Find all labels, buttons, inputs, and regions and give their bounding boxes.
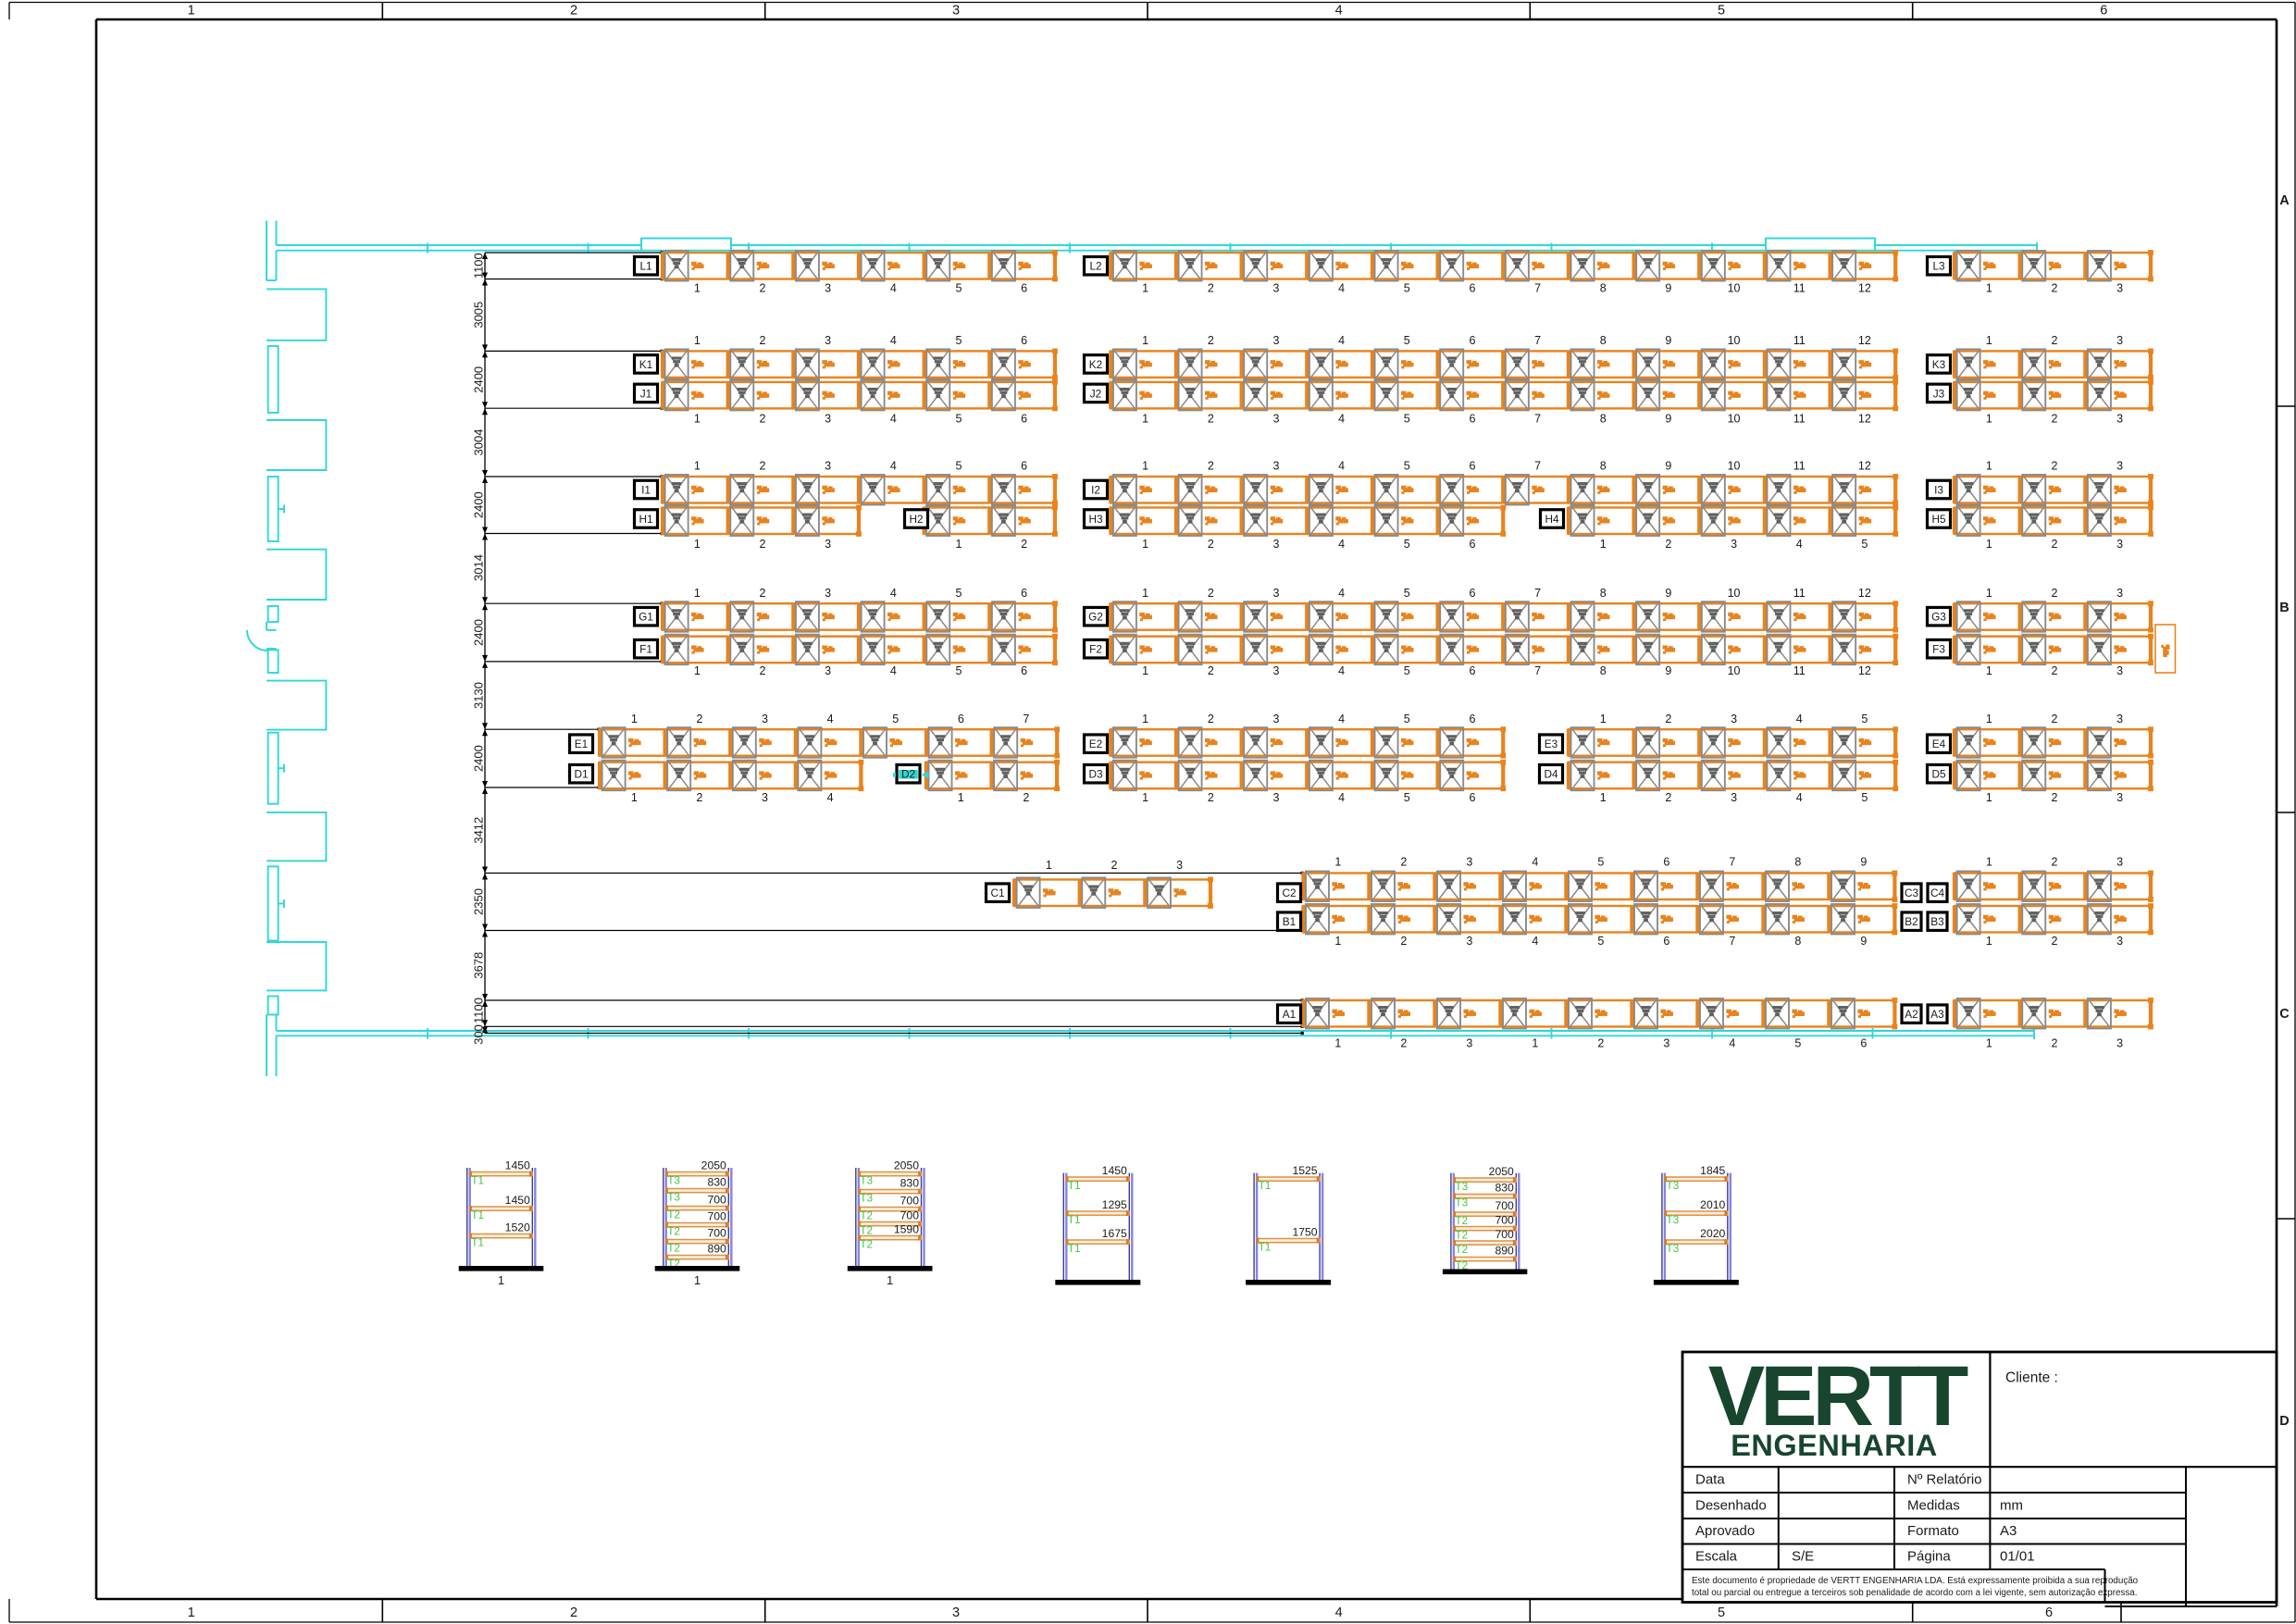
svg-text:mm: mm <box>2000 1498 2023 1514</box>
svg-text:5: 5 <box>955 282 962 295</box>
svg-text:4: 4 <box>1338 282 1345 295</box>
svg-text:700: 700 <box>900 1209 920 1222</box>
svg-text:6: 6 <box>1469 587 1475 600</box>
svg-text:8: 8 <box>1600 587 1607 600</box>
svg-text:8: 8 <box>1600 413 1607 426</box>
svg-text:2050: 2050 <box>1489 1165 1514 1178</box>
svg-text:6: 6 <box>1469 538 1475 551</box>
svg-text:1525: 1525 <box>1292 1164 1317 1177</box>
svg-text:4: 4 <box>1338 713 1345 725</box>
svg-text:3: 3 <box>2116 1037 2123 1050</box>
svg-text:T1: T1 <box>471 1236 484 1249</box>
svg-text:5: 5 <box>1404 664 1410 677</box>
svg-text:E2: E2 <box>1089 738 1102 750</box>
svg-text:1: 1 <box>694 282 701 295</box>
svg-text:3: 3 <box>1176 859 1183 872</box>
svg-text:2: 2 <box>696 791 702 804</box>
svg-text:1100: 1100 <box>472 998 486 1023</box>
svg-text:11: 11 <box>1793 413 1806 426</box>
svg-text:7: 7 <box>1534 664 1541 677</box>
svg-text:6: 6 <box>2045 1605 2053 1620</box>
svg-text:1: 1 <box>1142 413 1148 426</box>
svg-text:Página: Página <box>1907 1549 1951 1565</box>
svg-text:5: 5 <box>1404 334 1410 347</box>
svg-text:1: 1 <box>1046 859 1052 872</box>
svg-text:1: 1 <box>1986 1037 1992 1050</box>
svg-text:6: 6 <box>1021 587 1027 600</box>
svg-text:2: 2 <box>1208 713 1214 725</box>
svg-text:T2: T2 <box>1455 1214 1468 1227</box>
svg-text:ENGENHARIA: ENGENHARIA <box>1731 1429 1938 1462</box>
svg-text:4: 4 <box>1335 4 1343 19</box>
svg-text:1: 1 <box>1600 713 1607 725</box>
svg-text:1: 1 <box>694 334 701 347</box>
svg-text:4: 4 <box>1338 664 1345 677</box>
svg-text:3: 3 <box>1272 282 1279 295</box>
svg-text:T2: T2 <box>860 1224 873 1237</box>
svg-text:1: 1 <box>1986 791 1992 804</box>
svg-text:9: 9 <box>1665 587 1671 600</box>
svg-text:6: 6 <box>1469 460 1475 473</box>
svg-text:4: 4 <box>1729 1037 1735 1050</box>
svg-text:H2: H2 <box>909 513 923 526</box>
svg-text:1: 1 <box>1986 856 1992 869</box>
svg-text:F1: F1 <box>639 643 652 656</box>
svg-text:3: 3 <box>1272 460 1279 473</box>
svg-text:8: 8 <box>1600 282 1607 295</box>
svg-text:890: 890 <box>707 1243 726 1256</box>
svg-text:3: 3 <box>762 791 768 804</box>
svg-text:4: 4 <box>890 282 897 295</box>
svg-text:1: 1 <box>1986 282 1992 295</box>
svg-text:10: 10 <box>1728 460 1741 473</box>
svg-text:T3: T3 <box>1666 1213 1679 1226</box>
svg-text:B1: B1 <box>1283 915 1296 928</box>
svg-text:300: 300 <box>472 1024 486 1045</box>
svg-text:9: 9 <box>1665 334 1671 347</box>
svg-text:Formato: Formato <box>1907 1523 1959 1539</box>
svg-text:3004: 3004 <box>472 429 486 456</box>
svg-text:3: 3 <box>825 334 831 347</box>
svg-text:1: 1 <box>694 413 701 426</box>
svg-text:700: 700 <box>707 1227 726 1240</box>
svg-text:1: 1 <box>1334 1037 1341 1050</box>
svg-text:1: 1 <box>1142 664 1148 677</box>
svg-text:T3: T3 <box>1666 1179 1679 1192</box>
svg-text:6: 6 <box>1469 664 1475 677</box>
svg-text:6: 6 <box>1021 413 1027 426</box>
svg-text:1: 1 <box>1334 856 1341 869</box>
svg-text:9: 9 <box>1665 460 1671 473</box>
svg-text:T3: T3 <box>667 1174 680 1187</box>
svg-text:1: 1 <box>1600 791 1607 804</box>
svg-text:T2: T2 <box>667 1209 680 1221</box>
svg-text:12: 12 <box>1858 334 1871 347</box>
svg-text:4: 4 <box>1338 791 1345 804</box>
svg-text:3: 3 <box>2116 935 2123 948</box>
svg-text:1: 1 <box>1986 587 1992 600</box>
svg-text:1295: 1295 <box>1102 1198 1127 1211</box>
svg-text:2020: 2020 <box>1700 1227 1725 1240</box>
svg-text:K3: K3 <box>1932 358 1946 371</box>
svg-text:11: 11 <box>1793 334 1806 347</box>
svg-text:700: 700 <box>707 1210 726 1223</box>
svg-text:8: 8 <box>1600 460 1607 473</box>
svg-text:3: 3 <box>952 1605 960 1620</box>
svg-text:D2: D2 <box>901 768 915 781</box>
svg-text:6: 6 <box>1469 413 1475 426</box>
svg-text:5: 5 <box>1861 791 1868 804</box>
svg-text:3: 3 <box>1731 713 1737 725</box>
svg-text:3: 3 <box>2116 413 2123 426</box>
svg-text:1: 1 <box>1142 282 1148 295</box>
svg-text:G3: G3 <box>1931 611 1946 624</box>
svg-text:2: 2 <box>2052 460 2058 473</box>
svg-text:5: 5 <box>1597 856 1604 869</box>
svg-text:11: 11 <box>1793 282 1806 295</box>
svg-text:B2: B2 <box>1905 915 1917 928</box>
svg-text:C1: C1 <box>990 886 1004 899</box>
svg-text:T2: T2 <box>1455 1243 1468 1256</box>
svg-text:1: 1 <box>1986 538 1992 551</box>
svg-text:H3: H3 <box>1088 513 1103 526</box>
svg-text:2: 2 <box>2052 538 2058 551</box>
svg-text:T1: T1 <box>1259 1179 1272 1192</box>
svg-text:H4: H4 <box>1545 513 1559 526</box>
svg-text:6: 6 <box>1021 460 1027 473</box>
svg-text:K2: K2 <box>1089 358 1102 371</box>
svg-text:2: 2 <box>760 282 766 295</box>
svg-text:2: 2 <box>1208 460 1214 473</box>
svg-text:5: 5 <box>955 664 962 677</box>
svg-text:5: 5 <box>1597 935 1604 948</box>
svg-text:1100: 1100 <box>472 253 486 279</box>
svg-text:6: 6 <box>1469 713 1475 725</box>
svg-text:3: 3 <box>1272 664 1279 677</box>
svg-text:3: 3 <box>2116 664 2123 677</box>
svg-text:3: 3 <box>2116 791 2123 804</box>
svg-text:T2: T2 <box>667 1242 680 1255</box>
svg-text:1: 1 <box>1142 538 1148 551</box>
svg-text:L2: L2 <box>1089 260 1101 273</box>
svg-text:A3: A3 <box>1930 1008 1944 1021</box>
svg-text:3: 3 <box>1466 856 1472 869</box>
svg-text:2: 2 <box>2052 791 2058 804</box>
svg-text:2: 2 <box>760 334 766 347</box>
svg-text:G1: G1 <box>639 611 653 624</box>
svg-text:2: 2 <box>1665 791 1671 804</box>
svg-text:E4: E4 <box>1932 738 1946 750</box>
svg-text:6: 6 <box>1469 282 1475 295</box>
svg-text:T1: T1 <box>1259 1241 1272 1254</box>
svg-text:1590: 1590 <box>894 1223 919 1236</box>
svg-text:2400: 2400 <box>472 491 486 518</box>
svg-text:total ou parcial ou entregue a: total ou parcial ou entregue a terceiros… <box>1692 1588 2137 1598</box>
svg-text:4: 4 <box>1338 460 1345 473</box>
svg-text:Este documento é propriedade d: Este documento é propriedade de VERTT EN… <box>1692 1576 2139 1586</box>
svg-text:1: 1 <box>1142 460 1148 473</box>
svg-text:6: 6 <box>1860 1037 1867 1050</box>
svg-text:1: 1 <box>955 538 962 551</box>
svg-text:10: 10 <box>1728 334 1741 347</box>
svg-text:1: 1 <box>1600 538 1607 551</box>
svg-text:D1: D1 <box>574 768 588 781</box>
svg-text:2: 2 <box>1208 587 1214 600</box>
svg-text:3: 3 <box>1272 538 1279 551</box>
svg-text:1: 1 <box>887 1273 893 1287</box>
svg-text:2: 2 <box>2052 282 2058 295</box>
svg-text:2400: 2400 <box>472 366 486 393</box>
svg-text:3: 3 <box>1272 334 1279 347</box>
svg-text:2: 2 <box>2052 587 2058 600</box>
svg-text:H5: H5 <box>1931 513 1946 526</box>
svg-text:4: 4 <box>1338 538 1345 551</box>
svg-text:1: 1 <box>188 1605 195 1620</box>
svg-text:Data: Data <box>1695 1472 1725 1488</box>
svg-text:4: 4 <box>890 664 897 677</box>
svg-text:3: 3 <box>2116 334 2123 347</box>
svg-text:2: 2 <box>696 713 702 725</box>
svg-text:3: 3 <box>952 4 960 19</box>
svg-text:A3: A3 <box>2000 1523 2017 1539</box>
svg-text:3: 3 <box>825 587 831 600</box>
svg-text:10: 10 <box>1728 587 1741 600</box>
svg-text:4: 4 <box>1335 1605 1343 1620</box>
svg-text:2: 2 <box>1208 282 1214 295</box>
svg-text:2: 2 <box>1208 664 1214 677</box>
svg-text:8: 8 <box>1794 856 1801 869</box>
svg-text:2: 2 <box>1208 538 1214 551</box>
svg-text:4: 4 <box>1338 334 1345 347</box>
svg-text:4: 4 <box>890 587 897 600</box>
svg-text:700: 700 <box>900 1195 920 1208</box>
svg-text:3: 3 <box>825 460 831 473</box>
svg-text:1520: 1520 <box>505 1221 530 1234</box>
svg-text:2050: 2050 <box>701 1159 726 1172</box>
svg-text:A1: A1 <box>1283 1008 1296 1021</box>
svg-text:L3: L3 <box>1932 260 1945 273</box>
svg-text:6: 6 <box>1469 334 1475 347</box>
svg-text:1450: 1450 <box>505 1194 530 1207</box>
svg-text:3: 3 <box>762 713 768 725</box>
svg-text:2: 2 <box>760 538 766 551</box>
svg-text:1: 1 <box>694 587 701 600</box>
svg-text:5: 5 <box>1861 713 1868 725</box>
svg-text:T1: T1 <box>471 1209 484 1221</box>
svg-text:7: 7 <box>1729 856 1735 869</box>
svg-text:6: 6 <box>2100 4 2107 19</box>
svg-text:12: 12 <box>1858 413 1871 426</box>
svg-text:J2: J2 <box>1090 387 1101 400</box>
svg-text:F2: F2 <box>1089 643 1102 656</box>
svg-text:T2: T2 <box>1455 1229 1468 1242</box>
svg-text:1: 1 <box>694 664 701 677</box>
svg-text:4: 4 <box>1532 856 1538 869</box>
svg-text:3412: 3412 <box>472 817 486 844</box>
svg-text:2: 2 <box>2052 664 2058 677</box>
svg-text:6: 6 <box>1663 856 1669 869</box>
svg-text:3: 3 <box>2116 460 2123 473</box>
svg-text:2: 2 <box>1208 791 1214 804</box>
svg-text:Escala: Escala <box>1695 1549 1738 1565</box>
svg-text:8: 8 <box>1794 935 1801 948</box>
svg-text:5: 5 <box>955 334 962 347</box>
svg-text:T3: T3 <box>860 1174 873 1187</box>
svg-text:2: 2 <box>1400 935 1407 948</box>
svg-text:12: 12 <box>1858 587 1871 600</box>
svg-text:A: A <box>2279 193 2290 208</box>
svg-text:4: 4 <box>1338 587 1345 600</box>
svg-text:2: 2 <box>1021 538 1027 551</box>
svg-text:3: 3 <box>2116 282 2123 295</box>
svg-text:1: 1 <box>1986 334 1992 347</box>
svg-text:5: 5 <box>892 713 899 725</box>
svg-text:5: 5 <box>955 460 962 473</box>
svg-text:2400: 2400 <box>472 619 486 646</box>
svg-text:T3: T3 <box>1455 1196 1468 1209</box>
svg-text:12: 12 <box>1858 664 1871 677</box>
svg-text:4: 4 <box>827 791 834 804</box>
svg-text:3: 3 <box>1466 1037 1472 1050</box>
svg-text:1675: 1675 <box>1102 1227 1127 1240</box>
svg-text:2: 2 <box>1665 713 1671 725</box>
svg-text:A2: A2 <box>1905 1008 1917 1021</box>
svg-text:4: 4 <box>1532 935 1538 948</box>
svg-text:830: 830 <box>1495 1182 1514 1195</box>
svg-text:9: 9 <box>1665 664 1671 677</box>
svg-text:E1: E1 <box>575 738 588 750</box>
svg-text:2: 2 <box>760 664 766 677</box>
svg-text:8: 8 <box>1600 334 1607 347</box>
svg-text:11: 11 <box>1793 664 1806 677</box>
svg-text:D3: D3 <box>1088 768 1103 781</box>
svg-text:2: 2 <box>2052 334 2058 347</box>
svg-text:7: 7 <box>1534 334 1541 347</box>
svg-text:5: 5 <box>1404 791 1410 804</box>
svg-text:D: D <box>2279 1414 2289 1429</box>
svg-text:3: 3 <box>1663 1037 1669 1050</box>
svg-text:7: 7 <box>1534 413 1541 426</box>
svg-text:6: 6 <box>1021 664 1027 677</box>
svg-text:700: 700 <box>707 1194 726 1207</box>
svg-text:1: 1 <box>498 1273 504 1287</box>
svg-text:F3: F3 <box>1932 643 1945 656</box>
svg-text:6: 6 <box>1663 935 1669 948</box>
svg-text:1845: 1845 <box>1700 1164 1725 1177</box>
svg-text:9: 9 <box>1665 413 1671 426</box>
svg-text:3014: 3014 <box>472 554 486 581</box>
svg-text:T1: T1 <box>1068 1213 1081 1226</box>
svg-text:1750: 1750 <box>1292 1226 1317 1239</box>
svg-text:5: 5 <box>1404 413 1410 426</box>
svg-text:2: 2 <box>1597 1037 1604 1050</box>
svg-text:T2: T2 <box>860 1209 873 1222</box>
svg-text:B: B <box>2279 601 2289 615</box>
svg-text:2: 2 <box>1208 413 1214 426</box>
svg-text:2: 2 <box>1400 856 1407 869</box>
svg-text:4: 4 <box>890 413 897 426</box>
svg-text:C: C <box>2279 1007 2290 1022</box>
svg-text:2: 2 <box>1111 859 1118 872</box>
svg-text:12: 12 <box>1858 460 1871 473</box>
svg-text:3: 3 <box>1272 713 1279 725</box>
svg-text:5: 5 <box>1404 282 1410 295</box>
svg-text:5: 5 <box>1718 4 1725 19</box>
svg-text:5: 5 <box>955 587 962 600</box>
svg-text:C2: C2 <box>1282 886 1296 899</box>
svg-text:2: 2 <box>2052 713 2058 725</box>
svg-text:11: 11 <box>1793 587 1806 600</box>
svg-text:2400: 2400 <box>472 745 486 772</box>
svg-text:I2: I2 <box>1091 484 1100 497</box>
svg-text:3: 3 <box>2116 538 2123 551</box>
svg-text:6: 6 <box>958 713 964 725</box>
svg-text:2: 2 <box>570 1605 577 1620</box>
svg-text:3: 3 <box>1272 413 1279 426</box>
svg-text:1: 1 <box>1334 935 1341 948</box>
svg-text:12: 12 <box>1858 282 1871 295</box>
svg-text:1: 1 <box>1986 413 1992 426</box>
svg-text:3: 3 <box>825 538 831 551</box>
svg-text:Cliente :: Cliente : <box>2005 1370 2058 1386</box>
svg-text:2: 2 <box>1665 538 1671 551</box>
svg-text:7: 7 <box>1534 587 1541 600</box>
svg-text:2050: 2050 <box>894 1159 919 1172</box>
svg-text:5: 5 <box>1404 460 1410 473</box>
svg-text:5: 5 <box>1794 1037 1801 1050</box>
svg-text:9: 9 <box>1860 935 1867 948</box>
svg-text:4: 4 <box>890 334 897 347</box>
svg-text:L1: L1 <box>639 260 652 273</box>
svg-text:T3: T3 <box>860 1192 873 1205</box>
svg-text:10: 10 <box>1728 282 1741 295</box>
svg-text:B3: B3 <box>1930 915 1944 928</box>
svg-text:2: 2 <box>1400 1037 1407 1050</box>
svg-text:Medidas: Medidas <box>1907 1498 1960 1514</box>
svg-text:1: 1 <box>958 791 964 804</box>
svg-text:1: 1 <box>1986 935 1992 948</box>
svg-text:3: 3 <box>825 282 831 295</box>
svg-text:700: 700 <box>1495 1214 1514 1227</box>
svg-text:2: 2 <box>2052 1037 2058 1050</box>
svg-text:T2: T2 <box>667 1225 680 1238</box>
svg-text:1: 1 <box>1142 713 1148 725</box>
svg-text:3: 3 <box>2116 713 2123 725</box>
svg-text:I3: I3 <box>1934 484 1943 497</box>
svg-text:1: 1 <box>1986 664 1992 677</box>
svg-text:T1: T1 <box>1068 1179 1081 1192</box>
svg-text:7: 7 <box>1534 282 1541 295</box>
svg-text:T1: T1 <box>471 1174 484 1187</box>
svg-text:C3: C3 <box>1905 886 1919 899</box>
svg-text:1: 1 <box>631 713 638 725</box>
svg-text:3: 3 <box>1272 587 1279 600</box>
svg-text:1: 1 <box>1142 791 1148 804</box>
svg-text:T3: T3 <box>1455 1180 1468 1193</box>
svg-text:J1: J1 <box>640 387 652 400</box>
svg-text:2: 2 <box>2052 935 2058 948</box>
svg-text:1: 1 <box>1986 460 1992 473</box>
svg-text:D5: D5 <box>1931 768 1946 781</box>
svg-text:01/01: 01/01 <box>2000 1549 2035 1565</box>
svg-text:2: 2 <box>760 460 766 473</box>
svg-text:890: 890 <box>1495 1245 1514 1258</box>
svg-text:7: 7 <box>1023 713 1029 725</box>
svg-text:1: 1 <box>1532 1037 1538 1050</box>
svg-text:5: 5 <box>1718 1605 1725 1620</box>
svg-text:2: 2 <box>1208 334 1214 347</box>
svg-text:6: 6 <box>1021 282 1027 295</box>
